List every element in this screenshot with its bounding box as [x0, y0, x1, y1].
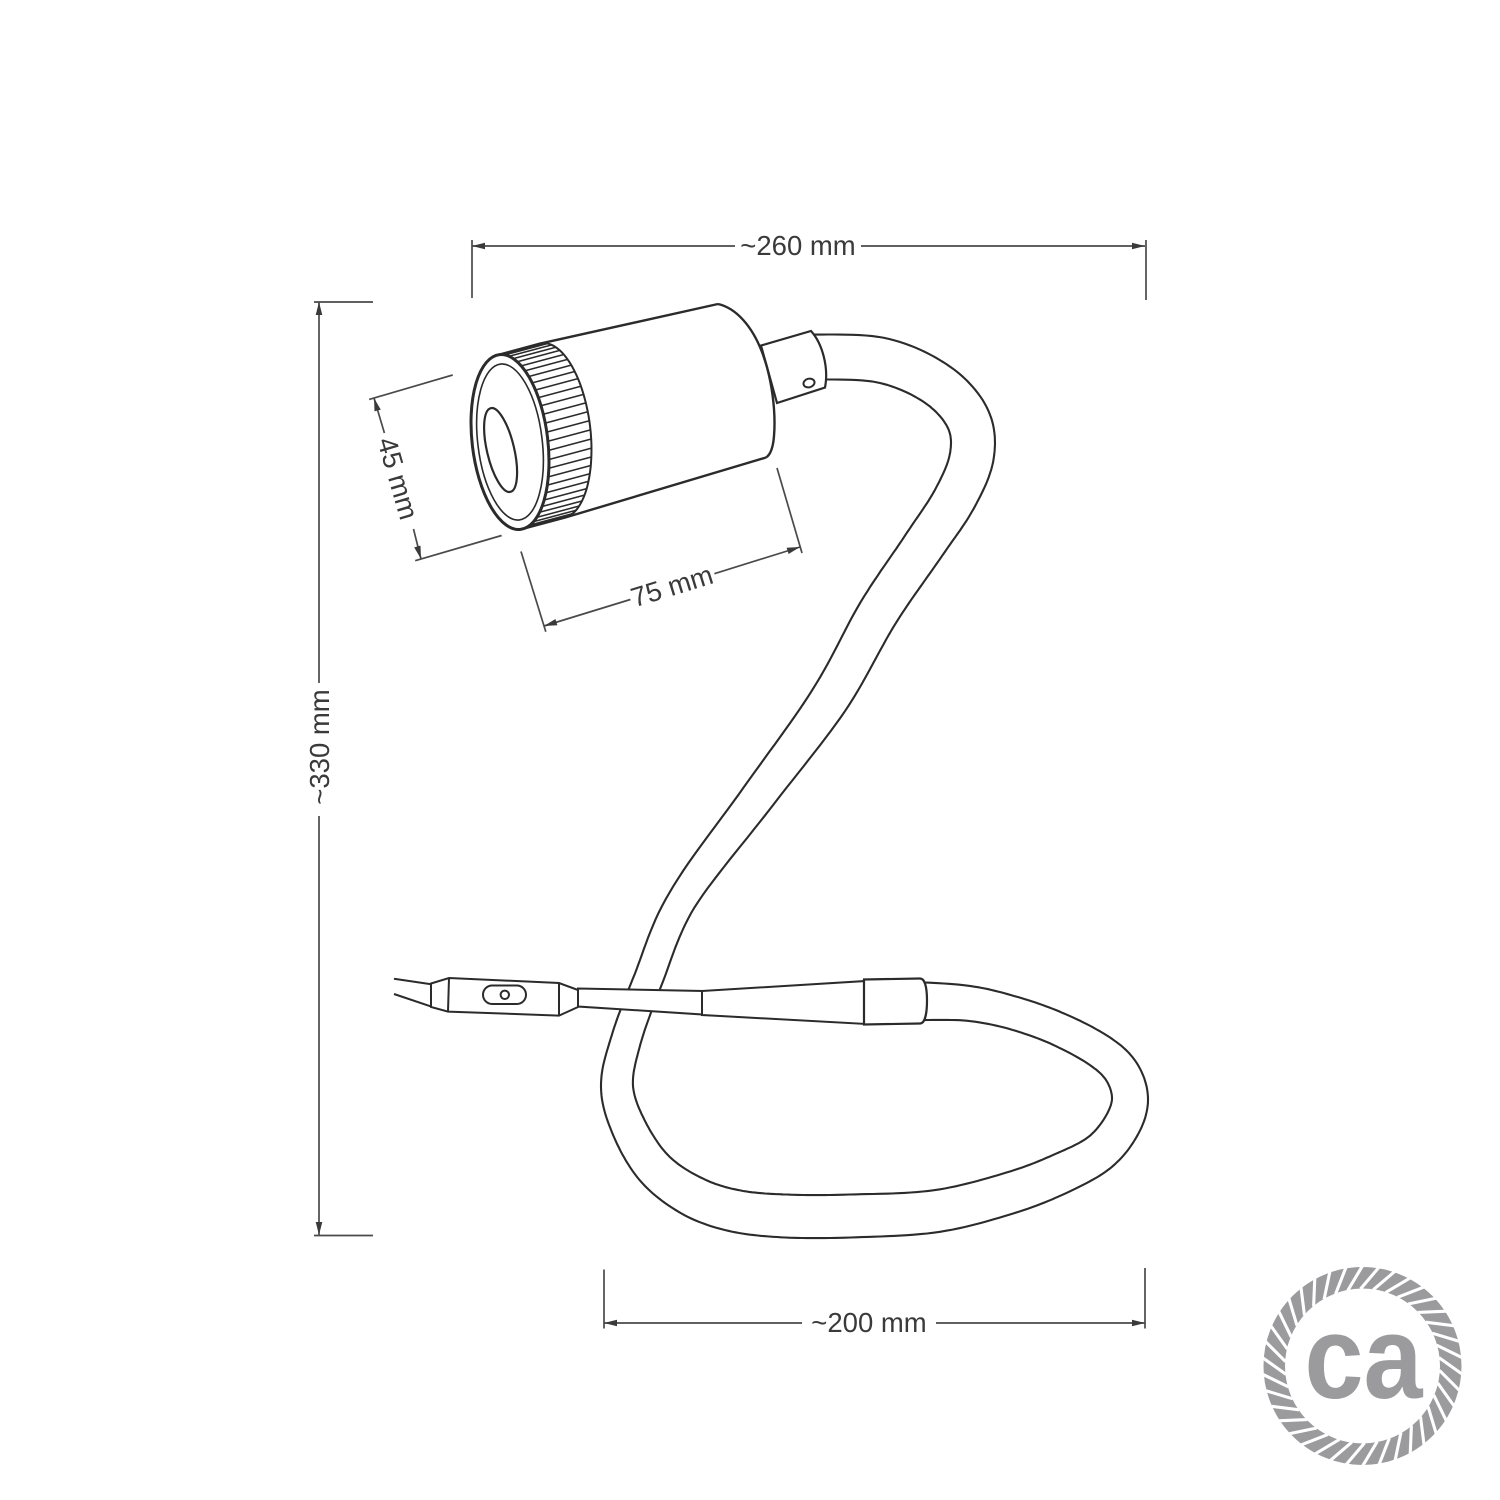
- svg-text:~200 mm: ~200 mm: [811, 1307, 926, 1338]
- svg-text:ca: ca: [1305, 1292, 1424, 1424]
- svg-text:~260 mm: ~260 mm: [740, 230, 855, 261]
- svg-text:~330 mm: ~330 mm: [304, 689, 335, 804]
